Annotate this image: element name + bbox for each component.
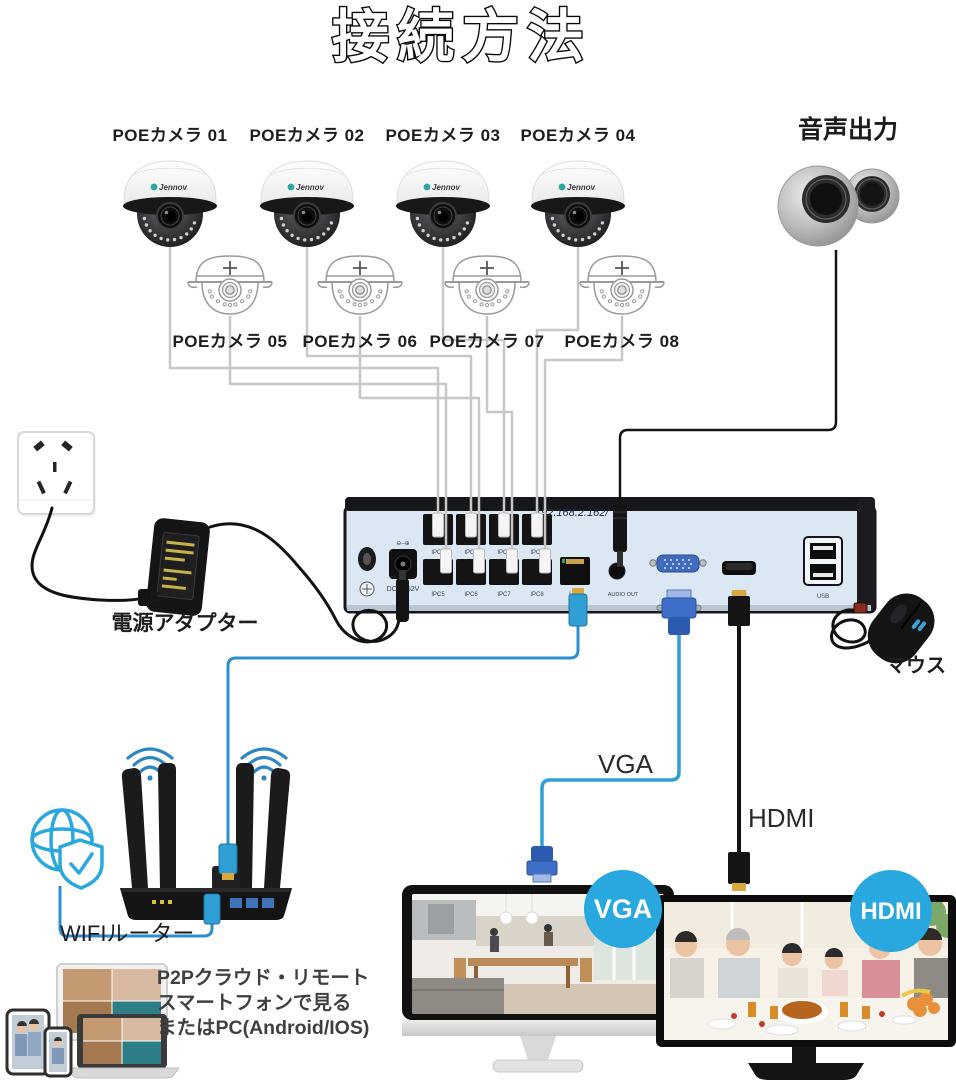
speakers [778,166,899,246]
vga-cable [527,590,701,882]
remote-devices [7,964,179,1078]
remote-line-1: P2Pクラウド・リモート [157,966,369,991]
mouse-label: マウス [886,649,946,678]
vga-badge: VGA [584,870,662,948]
camera-08-label: POEカメラ 08 [542,327,702,352]
usb-label: USB [817,594,829,600]
ground-icon [360,582,374,596]
power-adapter-label: 電源アダプター [100,607,270,637]
svg-text:HDMI: HDMI [860,898,921,925]
camera-07 [445,256,529,314]
connection-diagram: Jennov [0,0,956,1080]
camera-04-label: POEカメラ 04 [498,121,658,146]
camera-08 [580,256,664,314]
page-title: 接続方法 [332,5,592,69]
camera-05 [188,256,272,314]
poe-port-label: IPC6 [464,592,478,598]
ac-plug [138,589,151,606]
camera-04 [531,161,625,247]
remote-line-2: スマートフォンで見る [157,991,369,1016]
usb-ports [804,537,842,585]
camera-06 [318,256,402,314]
vga-cable-label: VGA [598,749,653,780]
dc-polarity-mark: ⊖–⊕ [396,541,409,547]
router-label: WIFIルーター [60,916,194,948]
poe-port-label: IPC8 [530,592,544,598]
audio-cable [620,250,836,506]
hdmi-cable [728,590,750,891]
camera-02 [260,161,354,247]
camera-01 [123,161,217,247]
nvr-recorder: ⊖–⊕ DC48-52V IPC1 IPC2 IPC3 IPC4 IPC5 IP… [345,497,875,612]
globe-shield-icon [32,810,102,888]
remote-viewing-text: P2Pクラウド・リモート スマートフォンで見る またはPC(Android/IO… [157,966,369,1041]
dc-plug [396,578,409,622]
hdmi-badge: HDMI [850,870,932,952]
wall-outlet [18,432,96,517]
camera-03 [396,161,490,247]
hdmi-cable-label: HDMI [748,803,814,834]
audio-output-label: 音声出力 [778,110,918,146]
remote-line-3: またはPC(Android/IOS) [157,1016,369,1041]
audio-out-label: AUDIO OUT [608,592,639,598]
camera-01-label: POEカメラ 01 [90,121,250,146]
vga-port [650,555,706,572]
poe-port-label: IPC5 [431,592,445,598]
svg-text:VGA: VGA [594,894,653,924]
poe-port-label: IPC7 [497,592,511,598]
